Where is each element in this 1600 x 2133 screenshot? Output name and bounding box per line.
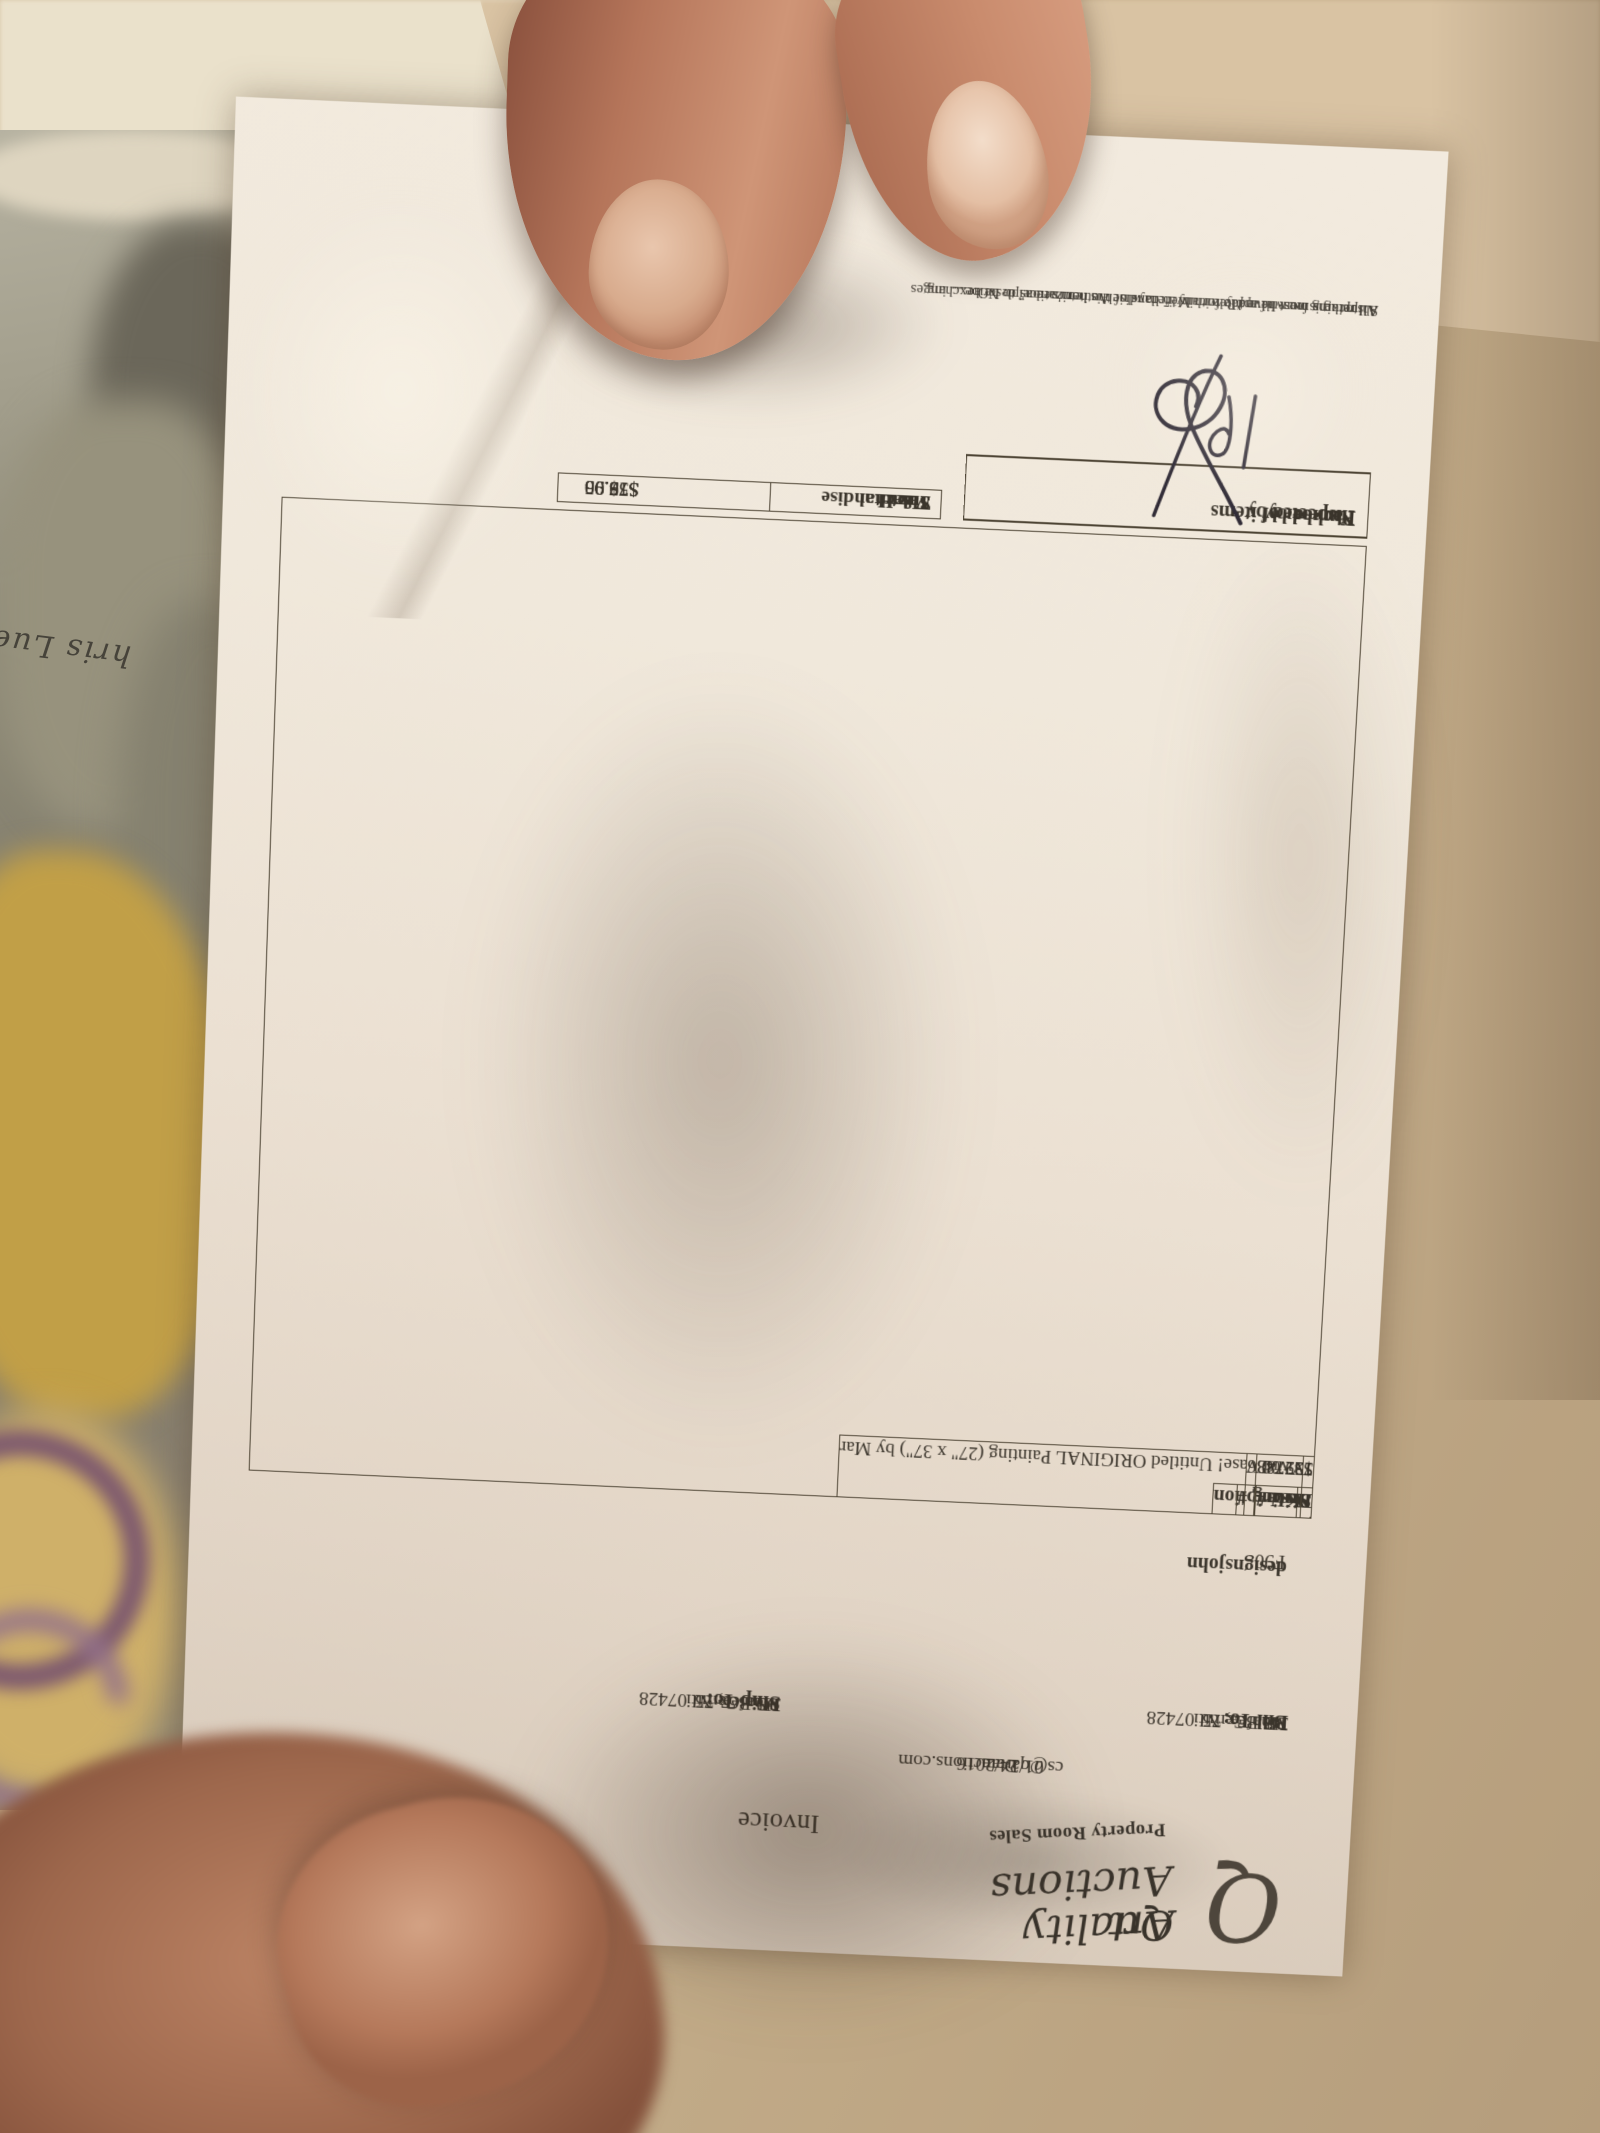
brand-tagline: Property Room Sales xyxy=(989,1818,1166,1846)
bill-to-block: Bill To: John Cerutti PO Box 75 Mcafee, … xyxy=(962,1722,1287,1737)
brand-block: Q Quality Art Auctions Property Room Sal… xyxy=(692,1750,1290,1960)
fingernail xyxy=(914,72,1059,259)
items-table: N Description Listing # SKU # Price 1 Vi… xyxy=(249,497,1367,1519)
photo-scene: hris Lue Q Quality Art Auctions Property… xyxy=(0,0,1600,2133)
item-row-description: Vivid Vase! Untitled ORIGINAL Painting (… xyxy=(837,1435,1314,1518)
number-of-items-value: 1 xyxy=(1334,505,1345,529)
fine-print-line4: Shipping is non-refundable xyxy=(1212,289,1379,322)
fingernail xyxy=(586,177,732,352)
right-shadow-band xyxy=(1430,0,1600,1400)
inspector-initials-mark xyxy=(1196,384,1272,479)
date-value: 01/24/2016 xyxy=(956,1751,1044,1776)
brand-name-line2: Art Auctions xyxy=(989,1857,1175,1954)
brand-monogram: Q xyxy=(1205,1859,1284,1953)
ship-to-address3: US xyxy=(755,1689,781,1717)
invoice-title: Invoice xyxy=(737,1805,820,1839)
bill-to-address3: US xyxy=(1263,1708,1289,1736)
item-row-price: $59.00 xyxy=(1245,1453,1314,1518)
invoice-paper: Q Quality Art Auctions Property Room Sal… xyxy=(176,97,1448,1977)
account-code: F90 xyxy=(1254,1549,1286,1573)
ship-to-block: Ship To: John Cerutti PO Box 75 Mcafee, … xyxy=(455,1702,780,1717)
